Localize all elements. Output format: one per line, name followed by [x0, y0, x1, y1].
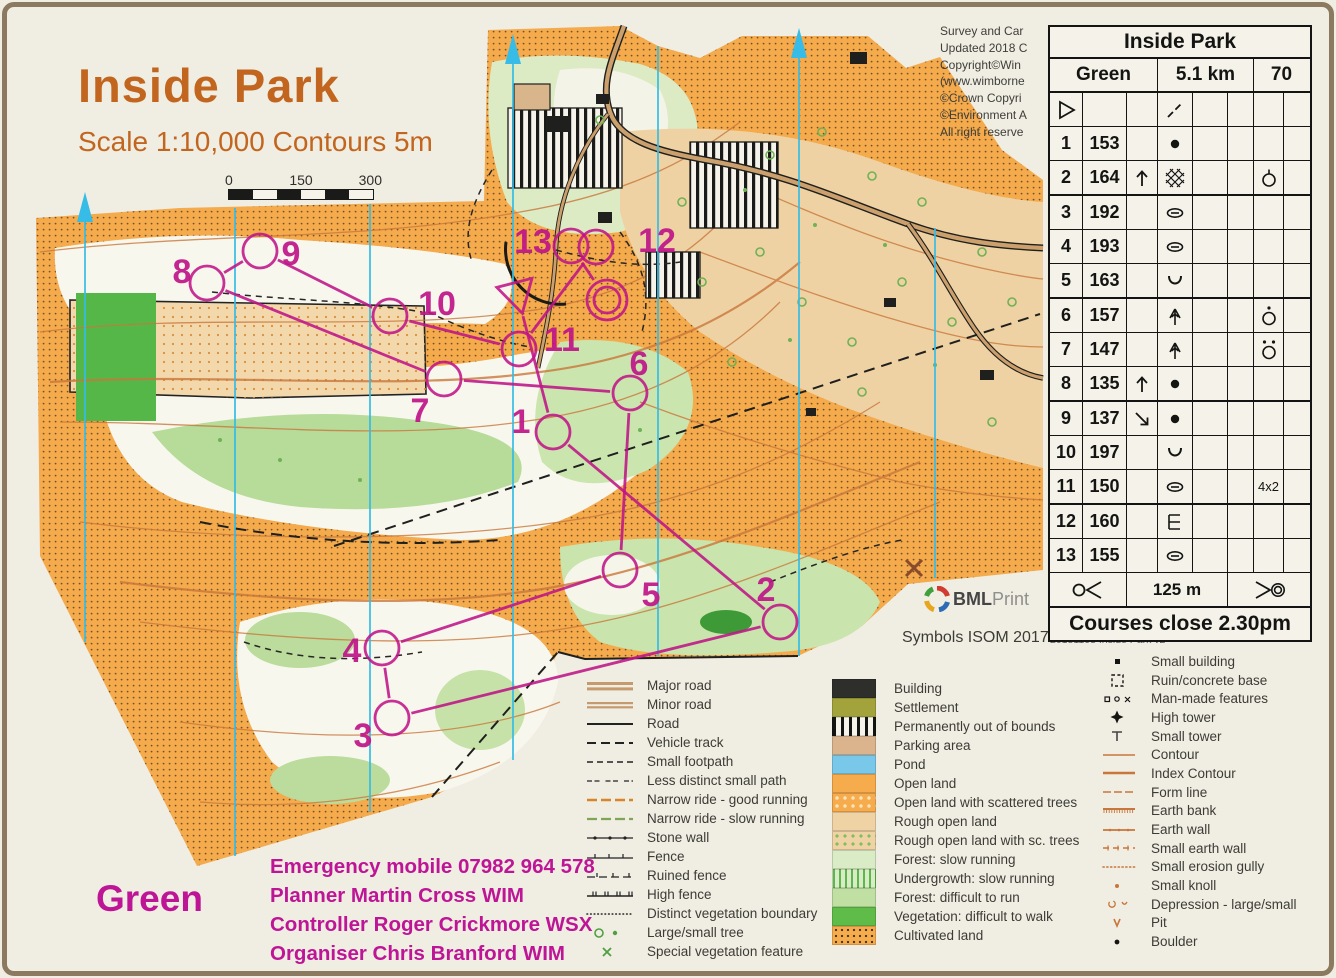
scale-bar-labels: 0150300 [228, 172, 374, 189]
copyright-line: Updated 2018 C [940, 40, 1046, 57]
card-cell [1127, 161, 1158, 194]
legend-label: Small building [1151, 654, 1235, 669]
legend-area-features: BuildingSettlementPermanently out of bou… [832, 679, 1079, 945]
card-cell [1193, 161, 1228, 194]
legend-label: High tower [1151, 710, 1216, 725]
control-number: 10 [418, 285, 456, 323]
legend-swatch [832, 888, 876, 907]
card-cell: 13 [1050, 539, 1083, 572]
copyright-line: All right reserve [940, 124, 1046, 141]
legend-row: Contour [1093, 745, 1297, 764]
card-cell [1284, 127, 1309, 160]
card-cell [1127, 436, 1158, 469]
legend-label: Less distinct small path [647, 773, 787, 788]
card-cell [1254, 436, 1284, 469]
legend-label: Undergrowth: slow running [894, 871, 1055, 886]
control-number: 3 [354, 717, 373, 755]
legend-label: Narrow ride - slow running [647, 811, 805, 826]
control-number: 5 [642, 576, 661, 614]
card-cell [1127, 299, 1158, 332]
card-cell [1127, 402, 1158, 435]
card-cell [1193, 230, 1228, 263]
legend-swatch [832, 717, 876, 736]
legend-row: Narrow ride - good running [585, 790, 817, 809]
printer-logo: BMLPrint [924, 586, 1029, 612]
legend-label: Small tower [1151, 729, 1222, 744]
card-cell: 193 [1083, 230, 1127, 263]
card-cell [1193, 93, 1228, 126]
legend-label: Fence [647, 849, 685, 864]
sw-pond-icon [832, 755, 888, 774]
card-cell [1158, 127, 1193, 160]
legend-linear-features: Major roadMinor roadRoadVehicle trackSma… [585, 676, 817, 961]
card-cell [1228, 196, 1254, 229]
card-cell: 12 [1050, 505, 1083, 538]
card-cell: 163 [1083, 264, 1127, 297]
ruin-base-icon [1093, 672, 1145, 688]
card-control-rows: 1153216431924193516361577147813591371019… [1050, 93, 1310, 572]
copyright-block: Survey and CarUpdated 2018 CCopyright©Wi… [940, 23, 1046, 141]
card-cell [1228, 402, 1254, 435]
legend-row: High tower [1093, 708, 1297, 727]
sw-parking-icon [832, 736, 888, 755]
printer-logo-light: Print [992, 589, 1029, 609]
scale-segment [301, 190, 325, 199]
stone-wall-icon [585, 831, 641, 845]
card-cell: 147 [1083, 333, 1127, 366]
legend-label: Permanently out of bounds [894, 719, 1055, 734]
legend-row: Earth wall [1093, 820, 1297, 839]
card-cell [1254, 402, 1284, 435]
card-cell [1158, 367, 1193, 400]
card-cell [1127, 505, 1158, 538]
card-cell: 155 [1083, 539, 1127, 572]
control-number: 12 [638, 222, 676, 260]
card-cell [1193, 367, 1228, 400]
card-cell [1193, 299, 1228, 332]
sw-cultivated-icon [832, 926, 888, 945]
card-cell [1284, 402, 1309, 435]
card-cell [1158, 299, 1193, 332]
card-cell: 160 [1083, 505, 1127, 538]
scanned-orienteering-map-page: 12345678910111213 Inside Park Scale 1:10… [0, 0, 1336, 978]
card-cell [1193, 333, 1228, 366]
card-cell: 197 [1083, 436, 1127, 469]
depression-ls-icon [1093, 896, 1145, 912]
legend-row: Parking area [832, 736, 1079, 755]
legend-label: Road [647, 716, 679, 731]
legend-label: Small footpath [647, 754, 733, 769]
emergency-mobile: Emergency mobile 07982 964 578 [270, 852, 595, 881]
card-course-row: Green 5.1 km 70 [1050, 59, 1310, 93]
card-cell [1254, 539, 1284, 572]
sw-rough-icon [832, 812, 888, 831]
scale-segment [349, 190, 373, 199]
legend-label: Small erosion gully [1151, 859, 1264, 874]
legend-label: Earth wall [1151, 822, 1210, 837]
control-row: 111504x2 [1050, 470, 1310, 505]
legend-row: Vehicle track [585, 733, 817, 752]
control-number: 8 [173, 253, 192, 291]
sw-undergrowth-icon [832, 869, 888, 888]
legend-swatch [832, 793, 876, 812]
control-row: 5163 [1050, 264, 1310, 299]
card-cell [1158, 505, 1193, 538]
legend-row: Small tower [1093, 727, 1297, 746]
sw-building-icon [832, 679, 888, 698]
legend-label: Earth bank [1151, 803, 1216, 818]
control-number: 7 [411, 392, 430, 430]
card-cell [1284, 93, 1309, 126]
card-cell [1193, 127, 1228, 160]
high-fence-icon [585, 888, 641, 902]
legend-row: Major road [585, 676, 817, 695]
legend-label: Narrow ride - good running [647, 792, 808, 807]
erosion-gully-icon [1093, 859, 1145, 875]
course-name-label: Green [96, 878, 203, 920]
legend-point-features: Small buildingRuin/concrete baseMan-made… [1093, 652, 1297, 951]
earth-bank-icon [1093, 803, 1145, 819]
sw-open-sc-icon [832, 793, 888, 812]
control-dimension: 4x2 [1258, 479, 1279, 494]
card-cell: 150 [1083, 470, 1127, 503]
card-cell [1127, 230, 1158, 263]
control-row: 8135 [1050, 367, 1310, 402]
scale-tick-label: 300 [359, 172, 382, 188]
legend-label: Major road [647, 678, 712, 693]
card-cell [1158, 264, 1193, 297]
card-cell [1158, 539, 1193, 572]
card-cell [1284, 367, 1309, 400]
card-cell: 157 [1083, 299, 1127, 332]
card-cell [1254, 161, 1284, 194]
legend-swatch [832, 755, 876, 774]
legend-row: Pit [1093, 914, 1297, 933]
control-row: 10197 [1050, 436, 1310, 470]
card-cell [1228, 299, 1254, 332]
legend-label: Rough open land with sc. trees [894, 833, 1079, 848]
card-cell [1228, 539, 1254, 572]
legend-label: Building [894, 681, 942, 696]
legend-row: Small earth wall [1093, 839, 1297, 858]
less-distinct-icon [585, 774, 641, 788]
form-line-icon [1093, 784, 1145, 800]
controller-credit: Controller Roger Crickmore WSX [270, 910, 595, 939]
copyright-line: (www.wimborne [940, 73, 1046, 90]
legend-swatch [832, 679, 876, 698]
legend-row: Index Contour [1093, 764, 1297, 783]
legend-row: Small knoll [1093, 876, 1297, 895]
card-cell [1284, 230, 1309, 263]
card-cell: 6 [1050, 299, 1083, 332]
small-tower-icon [1093, 728, 1145, 744]
vehicle-track-icon [585, 736, 641, 750]
card-course-length: 5.1 km [1158, 59, 1254, 91]
legend-swatch [832, 698, 876, 717]
bml-print-icon [924, 586, 950, 612]
legend-label: Pond [894, 757, 926, 772]
ruined-fence-icon [585, 869, 641, 883]
legend-row: Ruined fence [585, 866, 817, 885]
legend-label: Ruin/concrete base [1151, 673, 1267, 688]
card-cell: 1 [1050, 127, 1083, 160]
legend-row: Form line [1093, 783, 1297, 802]
card-cell [1193, 470, 1228, 503]
legend-label: Ruined fence [647, 868, 727, 883]
card-cell: 9 [1050, 402, 1083, 435]
legend-label: Vegetation: difficult to walk [894, 909, 1053, 924]
legend-swatch [832, 850, 876, 869]
legend-swatch [832, 907, 876, 926]
legend-label: Man-made features [1151, 691, 1268, 706]
scale-segment [325, 190, 349, 199]
legend-row: Open land [832, 774, 1079, 793]
card-cell [1158, 470, 1193, 503]
planner-credit: Planner Martin Cross WIM [270, 881, 595, 910]
legend-row: Rough open land with sc. trees [832, 831, 1079, 850]
copyright-line: Copyright©Win [940, 57, 1046, 74]
card-cell [1284, 299, 1309, 332]
minor-road-icon [585, 698, 641, 712]
sw-rough-sc-icon [832, 831, 888, 850]
legend-row: Fence [585, 847, 817, 866]
scale-segment [277, 190, 301, 199]
legend-label: Index Contour [1151, 766, 1236, 781]
card-cell [1083, 93, 1127, 126]
card-cell [1193, 436, 1228, 469]
card-start-row [1050, 93, 1310, 127]
card-cell: 153 [1083, 127, 1127, 160]
sw-oob-icon [832, 717, 888, 736]
card-cell [1127, 264, 1158, 297]
card-cell [1127, 93, 1158, 126]
legend-label: Distinct vegetation boundary [647, 906, 817, 921]
symbols-standard-note: Symbols ISOM 2017 [902, 629, 1049, 647]
legend-label: Minor road [647, 697, 712, 712]
legend-row: Cultivated land [832, 926, 1079, 945]
control-row: 12160 [1050, 505, 1310, 539]
legend-row: Vegetation: difficult to walk [832, 907, 1079, 926]
legend-row: Forest: slow running [832, 850, 1079, 869]
control-number: 1 [512, 403, 531, 441]
card-cell [1158, 436, 1193, 469]
card-cell [1254, 127, 1284, 160]
card-cell [1228, 264, 1254, 297]
sw-open-icon [832, 774, 888, 793]
card-cell [1284, 470, 1309, 503]
card-cell [1284, 196, 1309, 229]
legend-row: Undergrowth: slow running [832, 869, 1079, 888]
event-credits: Emergency mobile 07982 964 578 Planner M… [270, 852, 595, 968]
card-cell: 10 [1050, 436, 1083, 469]
card-cell [1193, 505, 1228, 538]
card-cell [1127, 333, 1158, 366]
control-row: 13155 [1050, 539, 1310, 572]
legend-row: Special vegetation feature [585, 942, 817, 961]
legend-row: Depression - large/small [1093, 895, 1297, 914]
legend-label: Pit [1151, 915, 1167, 930]
legend-row: Minor road [585, 695, 817, 714]
legend-row: Small footpath [585, 752, 817, 771]
card-cell [1127, 196, 1158, 229]
contour-icon [1093, 747, 1145, 763]
copyright-line: ©Crown Copyri [940, 90, 1046, 107]
scale-segment [253, 190, 277, 199]
legend-swatch [832, 812, 876, 831]
card-cell: 7 [1050, 333, 1083, 366]
card-cell [1158, 230, 1193, 263]
card-cell [1284, 264, 1309, 297]
card-cell [1228, 230, 1254, 263]
card-cell [1228, 367, 1254, 400]
legend-row: Earth bank [1093, 802, 1297, 821]
sw-forest-slow-icon [832, 850, 888, 869]
courses-close-notice: Courses close 2.30pm [1050, 608, 1310, 640]
sw-settlement-icon [832, 698, 888, 717]
card-cell [1254, 230, 1284, 263]
card-cell [1193, 264, 1228, 297]
veg-boundary-icon [585, 907, 641, 921]
legend-label: Open land [894, 776, 956, 791]
card-cell [1127, 367, 1158, 400]
card-cell [1284, 161, 1309, 194]
legend-row: Forest: difficult to run [832, 888, 1079, 907]
card-cell [1228, 436, 1254, 469]
legend-row: Rough open land [832, 812, 1079, 831]
card-cell: 8 [1050, 367, 1083, 400]
legend-label: Open land with scattered trees [894, 795, 1077, 810]
card-cell [1158, 402, 1193, 435]
card-cell [1284, 333, 1309, 366]
scale-bar: 0150300 [228, 172, 374, 200]
legend-row: Man-made features [1093, 689, 1297, 708]
legend-label: Depression - large/small [1151, 897, 1297, 912]
card-cell [1158, 333, 1193, 366]
card-cell [1254, 367, 1284, 400]
card-cell: 3 [1050, 196, 1083, 229]
control-row: 2164 [1050, 161, 1310, 196]
legend-swatch [832, 926, 876, 945]
card-cell [1127, 127, 1158, 160]
legend-swatch [832, 736, 876, 755]
card-cell [1254, 264, 1284, 297]
legend-row: Small building [1093, 652, 1297, 671]
high-tower-icon [1093, 709, 1145, 725]
card-cell [1254, 333, 1284, 366]
finish-double-circle-icon [1228, 573, 1309, 606]
man-made-icon [1093, 691, 1145, 707]
card-cell [1254, 505, 1284, 538]
legend-row: Settlement [832, 698, 1079, 717]
card-cell [1127, 470, 1158, 503]
card-cell: 11 [1050, 470, 1083, 503]
scale-segment [229, 190, 253, 199]
control-number: 11 [544, 321, 580, 359]
copyright-line: Survey and Car [940, 23, 1046, 40]
card-cell [1158, 161, 1193, 194]
control-row: 6157 [1050, 299, 1310, 333]
legend-label: Vehicle track [647, 735, 724, 750]
control-number: 2 [757, 571, 776, 609]
legend-label: High fence [647, 887, 712, 902]
card-cell: 164 [1083, 161, 1127, 194]
organiser-credit: Organiser Chris Branford WIM [270, 939, 595, 968]
card-cell [1228, 127, 1254, 160]
trees-icon [585, 926, 641, 940]
legend-row: Stone wall [585, 828, 817, 847]
control-number: 6 [630, 345, 649, 383]
map-scale-subtitle: Scale 1:10,000 Contours 5m [78, 126, 433, 158]
legend-swatch [832, 774, 876, 793]
legend-row: Less distinct small path [585, 771, 817, 790]
finish-distance: 125 m [1127, 573, 1228, 606]
legend-label: Forest: difficult to run [894, 890, 1020, 905]
pit-icon [1093, 915, 1145, 931]
card-cell [1050, 93, 1083, 126]
scale-tick-label: 0 [225, 172, 233, 188]
road-icon [585, 717, 641, 731]
card-cell [1254, 299, 1284, 332]
card-cell [1284, 436, 1309, 469]
card-cell [1254, 93, 1284, 126]
card-cell [1284, 539, 1309, 572]
legend-label: Stone wall [647, 830, 709, 845]
card-cell [1228, 333, 1254, 366]
card-finish-row: 125 m [1050, 572, 1310, 608]
control-row: 3192 [1050, 196, 1310, 230]
legend-label: Small earth wall [1151, 841, 1246, 856]
legend-label: Forest: slow running [894, 852, 1016, 867]
control-row: 4193 [1050, 230, 1310, 264]
card-cell: 4 [1050, 230, 1083, 263]
card-cell [1193, 402, 1228, 435]
card-cell [1228, 505, 1254, 538]
legend-row: Building [832, 679, 1079, 698]
major-road-icon [585, 679, 641, 693]
card-cell [1228, 161, 1254, 194]
legend-label: Cultivated land [894, 928, 983, 943]
special-veg-icon [585, 945, 641, 959]
card-cell [1193, 196, 1228, 229]
scale-bar-segments [228, 189, 374, 200]
legend-row: Large/small tree [585, 923, 817, 942]
card-cell: 192 [1083, 196, 1127, 229]
control-number: 13 [514, 223, 552, 261]
legend-label: Parking area [894, 738, 971, 753]
printer-logo-bold: BML [953, 589, 992, 609]
legend-row: Ruin/concrete base [1093, 671, 1297, 690]
earth-wall-icon [1093, 822, 1145, 838]
sw-veg-diff-icon [832, 907, 888, 926]
card-cell [1158, 196, 1193, 229]
copyright-line: ©Environment A [940, 107, 1046, 124]
card-cell [1228, 93, 1254, 126]
index-contour-icon [1093, 765, 1145, 781]
legend-row: Distinct vegetation boundary [585, 904, 817, 923]
ride-slow-icon [585, 812, 641, 826]
small-building-icon [1093, 653, 1145, 669]
legend-label: Form line [1151, 785, 1207, 800]
scale-tick-label: 150 [289, 172, 312, 188]
card-cell: 137 [1083, 402, 1127, 435]
legend-label: Special vegetation feature [647, 944, 803, 959]
fence-icon [585, 850, 641, 864]
legend-row: Small erosion gully [1093, 858, 1297, 877]
control-description-card: Inside Park Green 5.1 km 70 115321643192… [1048, 25, 1312, 642]
legend-label: Small knoll [1151, 878, 1216, 893]
card-cell [1127, 539, 1158, 572]
legend-row: Narrow ride - slow running [585, 809, 817, 828]
